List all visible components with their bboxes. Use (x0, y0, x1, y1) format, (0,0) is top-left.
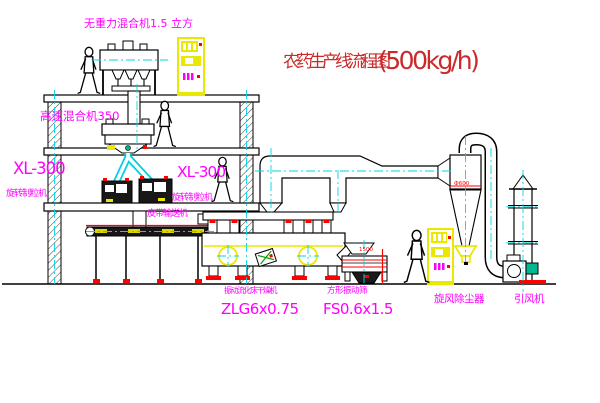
label-dryer-model: ZLG6x0.75 (221, 300, 299, 318)
label-cyclone-diameter: Ф600 (454, 181, 470, 187)
high-speed-mixer (102, 119, 154, 153)
page-title-capacity: (500kg/h) (378, 46, 478, 75)
feed-duct (128, 91, 140, 124)
flow-diagram-svg: 无重力混合机1.5 立方 农药生产线流程图 (500kg/h) 高速混合机350… (0, 0, 600, 403)
page-title: 农药生产线流程图 (283, 52, 390, 72)
label-high-speed-mixer: 高速混合机350 (40, 109, 119, 123)
belt-conveyor (86, 226, 216, 284)
label-sieve-dimension: 1500 (359, 247, 373, 253)
worker-figure-floor2 (154, 101, 176, 146)
label-dryer-name: 振动流化床干燥机 (224, 285, 277, 295)
label-gravity-mixer: 无重力混合机1.5 立方 (84, 16, 193, 30)
label-fan: 引风机 (514, 292, 545, 305)
exhaust-duct (260, 156, 450, 212)
label-granulator-left-name: 旋转制粒机 (6, 187, 47, 199)
label-cyclone: 旋风除尘器 (434, 292, 485, 305)
control-cabinet-ground (428, 229, 453, 284)
diagram-canvas: 无重力混合机1.5 立方 农药生产线流程图 (500kg/h) 高速混合机350… (0, 0, 600, 403)
worker-figure-ground (404, 230, 430, 282)
label-granulator-left-model: XL-300 (13, 159, 65, 178)
label-granulator-mid-model: XL-300 (177, 163, 225, 181)
label-sieve-model: FS0.6x1.5 (323, 300, 393, 318)
granulator-left (102, 178, 132, 203)
fluid-bed-dryer (198, 212, 355, 280)
label-belt-conveyor: 皮带输送机 (147, 207, 188, 219)
granulator-right (139, 176, 172, 203)
zero-gravity-mixer (100, 41, 158, 95)
label-sieve-name: 方形振动筛 (327, 285, 368, 296)
control-cabinet-upper (178, 38, 204, 95)
granulator-discharge-duct (133, 211, 146, 227)
label-granulator-mid-name: 旋转制粒机 (172, 191, 213, 203)
worker-figure-roof (78, 47, 101, 93)
